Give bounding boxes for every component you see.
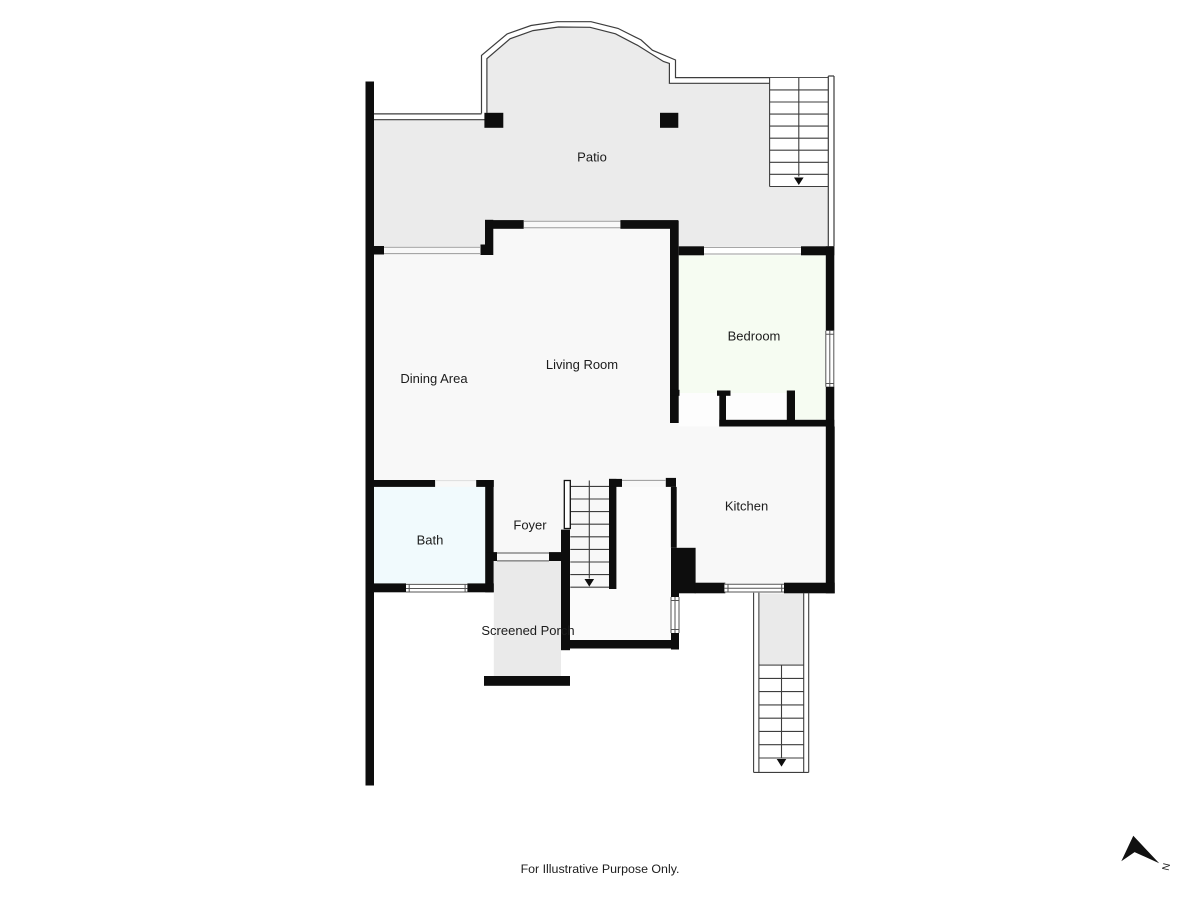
- svg-text:Dining Area: Dining Area: [400, 371, 468, 386]
- svg-text:For Illustrative Purpose Only.: For Illustrative Purpose Only.: [521, 862, 680, 876]
- svg-text:Kitchen: Kitchen: [725, 499, 768, 514]
- svg-text:Bedroom: Bedroom: [728, 329, 781, 344]
- svg-text:Screened Porch: Screened Porch: [481, 623, 574, 638]
- svg-text:Patio: Patio: [577, 150, 607, 165]
- svg-text:Living Room: Living Room: [546, 357, 618, 372]
- svg-text:Foyer: Foyer: [513, 518, 547, 533]
- svg-text:Bath: Bath: [417, 533, 444, 548]
